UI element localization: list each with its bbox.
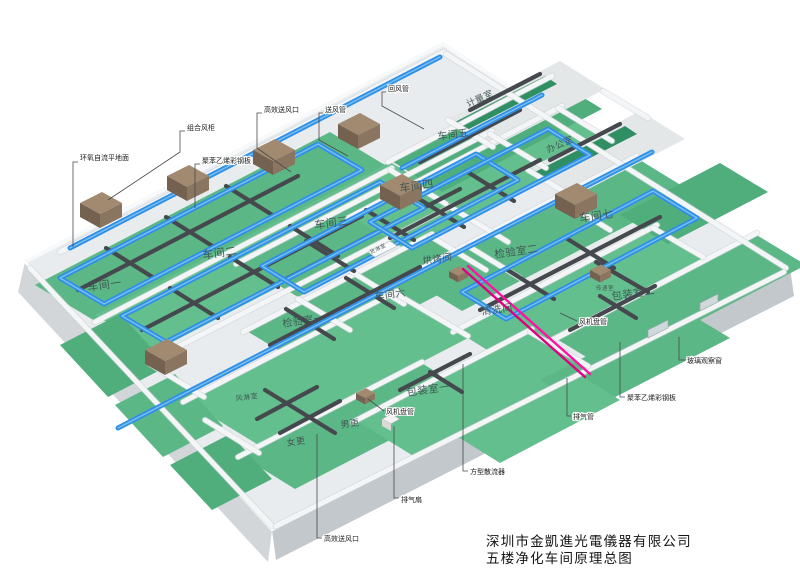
annotation-label-polystyrene-steel-panel-left: 聚苯乙烯彩钢板 [202,156,251,165]
annotation-label-return-air-duct: 回风管 [388,84,409,93]
diagram-canvas: 车间一车间二车间三车间四车间五车间六车间七检验室一检验室二包装室一包装室二烘烤间… [0,0,800,587]
company-name: 深圳市金凱進光電儀器有限公司 [486,533,692,549]
annotation-label-combined-air-handling-unit: 组合风柜 [187,123,215,132]
annotation-label-square-diffuser: 方型散流器 [470,467,505,476]
annotation-label-supply-air-duct: 送风管 [325,105,346,114]
annotation-label-fan-coil-unit-right: 风机盘管 [579,317,607,326]
annotation-label-exhaust-fan: 排气扇 [401,495,422,504]
annotation-label-glass-observation-window: 玻璃观察窗 [687,356,722,365]
room-label-pass-through-room: 传递室 [596,284,614,292]
wall-segment [603,91,648,118]
isometric-cleanroom-diagram: 车间一车间二车间三车间四车间五车间六车间七检验室一检验室二包装室一包装室二烘烤间… [0,0,800,587]
annotation-label-exhaust-pipe: 排气管 [573,412,594,421]
annotation-label-hepa-supply-outlet-top: 高效送风口 [264,105,299,114]
annotation-label-fan-coil-unit-bottom: 风机盘管 [386,407,414,416]
annotation-label-epoxy-self-leveling-floor: 环氧自流平地面 [80,153,129,162]
drawing-title: 五楼净化车间原理总图 [486,550,633,566]
annotation-label-hepa-supply-outlet-bottom: 高效送风口 [324,534,359,543]
annotation-label-polystyrene-steel-panel-right: 聚苯乙烯彩钢板 [627,393,676,402]
title-block: 深圳市金凱進光電儀器有限公司五楼净化车间原理总图 [486,533,692,566]
